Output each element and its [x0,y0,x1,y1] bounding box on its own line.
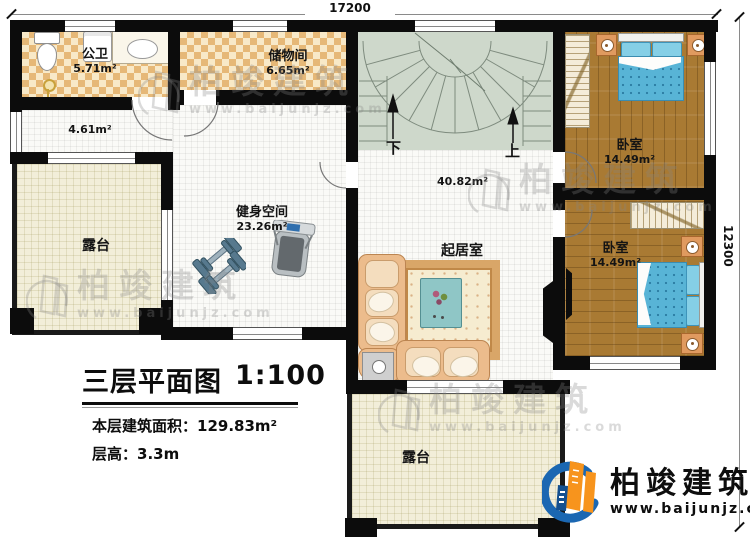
room-label-terrace-left: 露台 [70,238,122,254]
room-label-living-area: 40.82m² [420,176,505,189]
brand-url: www.baijunjz.com [610,501,750,517]
room-label-hall-area: 4.61m² [55,124,125,137]
room-label-bathroom: 公卫 5.71m² [45,48,145,76]
room-area: 14.49m² [582,154,677,167]
room-area: 23.26m² [212,221,312,234]
title-block: 三层平面图 1:100 本层建筑面积：129.83m² 层高：3.3m [82,360,326,464]
room-name: 储物间 [238,50,338,65]
room-label-bedroom-bottom: 卧室 14.49m² [568,242,663,270]
room-name: 卧室 [582,139,677,154]
brand-name: 柏竣建筑 [610,467,750,500]
room-area: 14.49m² [568,257,663,270]
dimension-line-right [739,18,740,528]
floor-area-value: 129.83m² [197,417,277,435]
floor-area-label: 本层建筑面积： [92,417,197,435]
dimension-right-value: 12300 [721,225,735,305]
room-label-terrace-bottom: 露台 [390,450,442,466]
room-label-storage: 储物间 6.65m² [238,50,338,78]
floor-height-label: 层高： [92,445,137,463]
brand-logo-icon [542,455,604,529]
plan-scale: 1:100 [235,360,326,399]
room-label-bedroom-top: 卧室 14.49m² [582,139,677,167]
title-underline [82,402,298,408]
room-name: 公卫 [45,48,145,63]
plan-title: 三层平面图 [82,360,222,399]
floorplan-canvas: 下 上 公卫 [0,0,750,537]
dimension-top-value: 17200 [305,1,395,15]
room-name: 健身空间 [212,206,312,221]
brand-logo: 柏竣建筑 www.baijunjz.com [542,455,750,529]
room-label-gym: 健身空间 23.26m² [212,206,312,234]
room-name: 卧室 [568,242,663,257]
floor-height-value: 3.3m [137,445,179,463]
room-area: 6.65m² [238,65,338,78]
room-area: 5.71m² [45,63,145,76]
room-label-living-name: 起居室 [417,243,507,259]
